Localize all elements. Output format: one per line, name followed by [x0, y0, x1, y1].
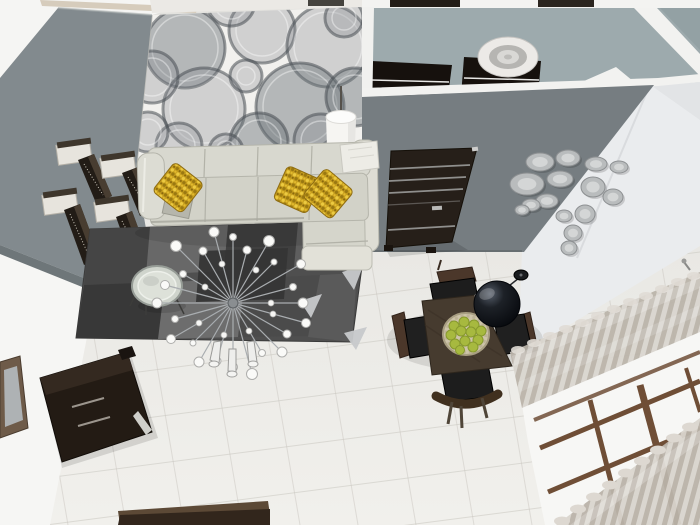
interior-render: [0, 0, 700, 525]
scene-canvas: [0, 0, 700, 525]
far-room-strip: [362, 0, 700, 8]
